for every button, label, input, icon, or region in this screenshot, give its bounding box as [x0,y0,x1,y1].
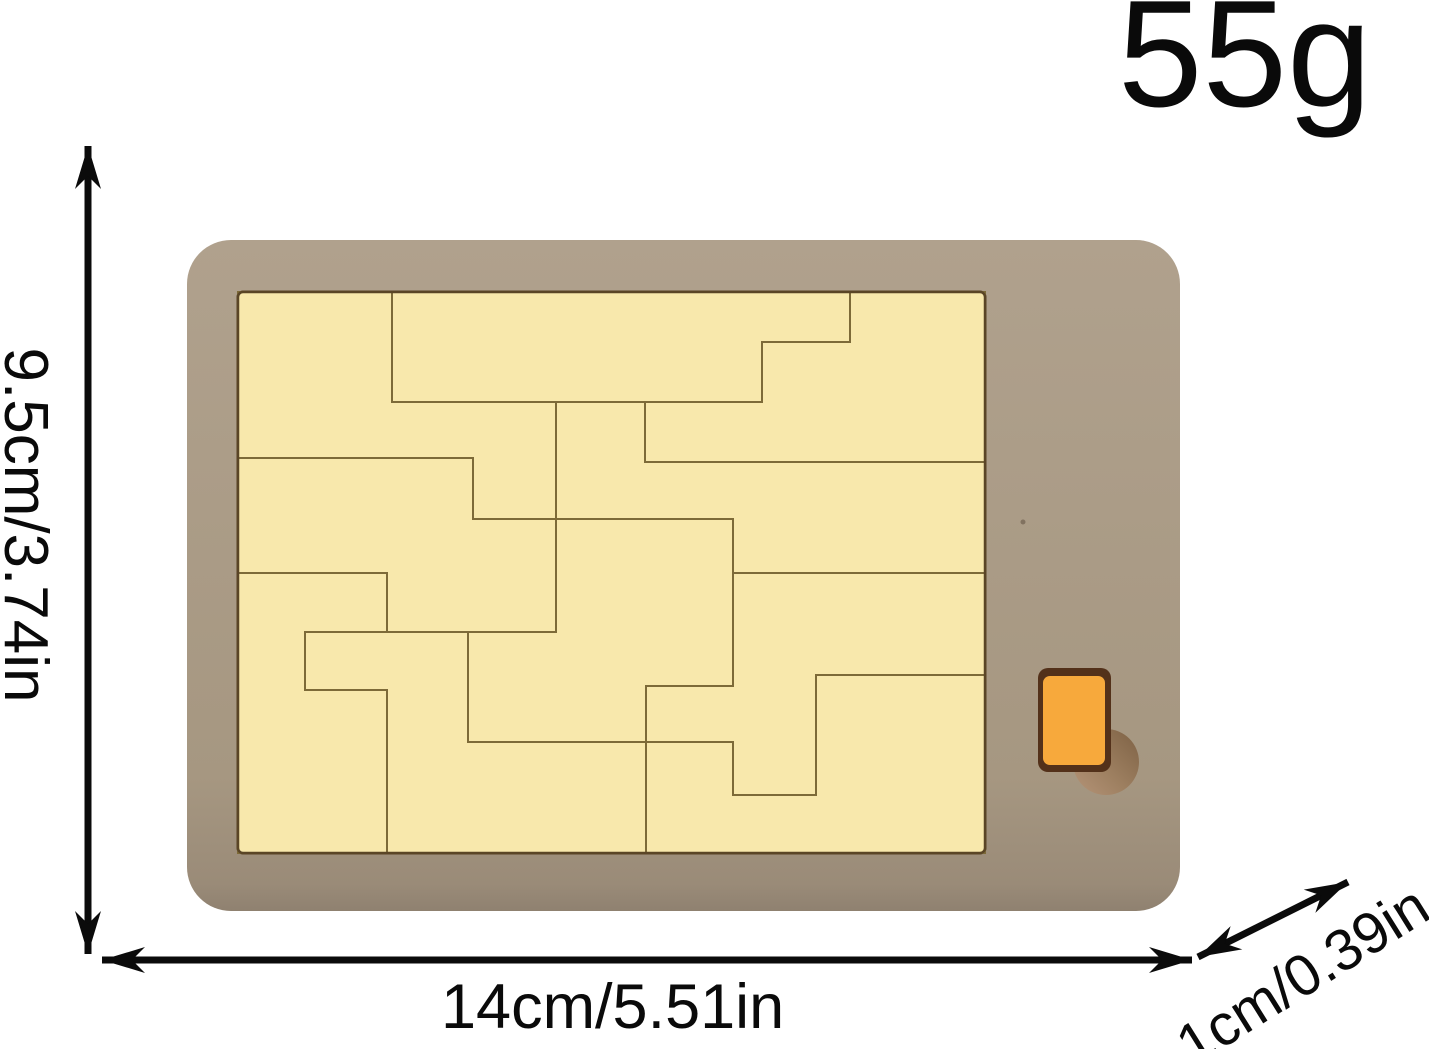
puzzle-piece-bottom-left-c [238,573,387,853]
diagram-svg [0,0,1429,1049]
board-speck [1021,520,1026,525]
height-dimension-label: 9.5cm/3.74in [0,348,56,703]
product-dimension-diagram: 55g 9.5cm/3.74in 14cm/5.51in 1cm/0.39in [0,0,1429,1049]
width-dimension-label: 14cm/5.51in [441,976,784,1039]
weight-label: 55g [1118,0,1372,130]
puzzle-pieces [238,292,985,853]
knob-piece [1043,676,1105,765]
